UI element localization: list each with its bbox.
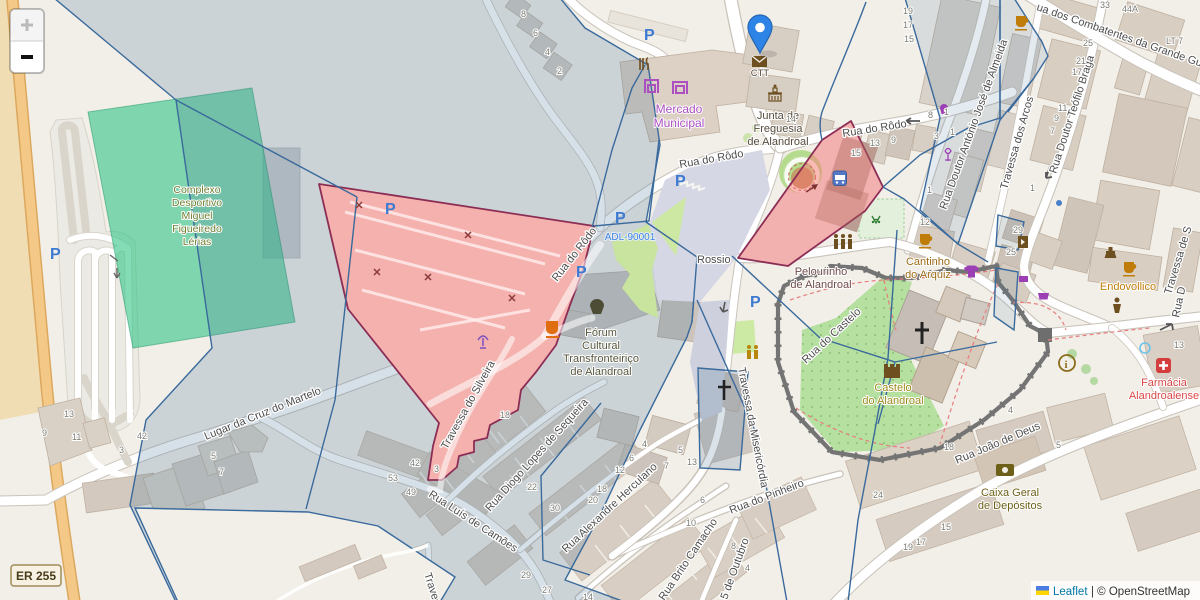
svg-text:7: 7 (1050, 126, 1055, 136)
svg-text:1: 1 (944, 107, 949, 117)
svg-text:11: 11 (72, 432, 81, 442)
svg-text:de Alandroal: de Alandroal (790, 279, 851, 291)
svg-text:27: 27 (542, 585, 552, 595)
svg-text:7: 7 (664, 461, 669, 471)
svg-text:6: 6 (700, 495, 705, 505)
svg-text:44A: 44A (1122, 4, 1138, 14)
svg-text:18: 18 (944, 442, 954, 452)
svg-text:Miguel: Miguel (182, 210, 213, 222)
svg-text:P: P (750, 294, 761, 311)
svg-text:6: 6 (629, 453, 634, 463)
svg-text:3: 3 (119, 445, 124, 455)
svg-text:4: 4 (745, 563, 750, 573)
svg-text:Complexo: Complexo (173, 184, 220, 196)
svg-text:P: P (644, 27, 655, 44)
svg-text:Cultural: Cultural (582, 340, 620, 352)
svg-text:do Alandroal: do Alandroal (862, 395, 923, 407)
svg-text:Fórum: Fórum (585, 327, 617, 339)
svg-text:CTT: CTT (751, 68, 770, 79)
svg-text:15: 15 (904, 34, 914, 44)
svg-text:de Alandroal: de Alandroal (570, 366, 631, 378)
svg-text:30: 30 (550, 503, 560, 513)
svg-text:LT 7: LT 7 (1166, 36, 1183, 46)
svg-text:9: 9 (42, 428, 47, 438)
svg-text:12: 12 (615, 465, 625, 475)
svg-text:42: 42 (410, 458, 420, 468)
svg-text:de Depósitos: de Depósitos (978, 500, 1043, 512)
svg-text:9: 9 (891, 135, 896, 145)
svg-text:13: 13 (870, 138, 880, 148)
svg-text:Endovollico: Endovollico (1100, 281, 1156, 293)
svg-text:22: 22 (527, 482, 537, 492)
svg-text:20: 20 (588, 495, 598, 505)
svg-text:Lérias: Lérias (183, 236, 212, 248)
svg-text:Municipal: Municipal (654, 116, 705, 130)
svg-text:Farmácia: Farmácia (1141, 377, 1188, 389)
svg-text:25: 25 (1006, 247, 1016, 257)
svg-text:i: i (1065, 359, 1068, 371)
svg-text:5: 5 (1056, 440, 1061, 450)
svg-text:19: 19 (903, 6, 913, 16)
svg-text:15: 15 (851, 148, 861, 158)
svg-text:17: 17 (903, 20, 913, 30)
svg-text:5: 5 (211, 451, 216, 461)
svg-text:2: 2 (557, 66, 562, 76)
svg-text:ADL-90001: ADL-90001 (605, 232, 656, 243)
svg-text:4: 4 (642, 439, 647, 449)
svg-text:8: 8 (731, 541, 736, 551)
svg-text:15: 15 (941, 522, 951, 532)
svg-text:1: 1 (950, 127, 955, 137)
svg-text:Cantinho: Cantinho (906, 256, 950, 268)
svg-text:| © OpenStreetMap: | © OpenStreetMap (1091, 586, 1190, 598)
svg-text:Pelourinho: Pelourinho (795, 266, 848, 278)
svg-text:Caixa Geral: Caixa Geral (981, 487, 1039, 499)
svg-text:4: 4 (545, 47, 550, 57)
svg-text:5: 5 (678, 445, 683, 455)
svg-text:Rossio: Rossio (697, 254, 731, 266)
svg-text:Alandroalense: Alandroalense (1129, 390, 1199, 402)
svg-text:3: 3 (934, 131, 939, 141)
svg-text:P: P (50, 246, 61, 263)
svg-text:10: 10 (686, 518, 696, 528)
svg-text:11: 11 (1058, 103, 1067, 113)
svg-text:8: 8 (928, 110, 933, 120)
svg-text:1: 1 (1030, 183, 1035, 193)
svg-text:24: 24 (873, 490, 883, 500)
svg-text:4: 4 (1008, 405, 1013, 415)
svg-text:14: 14 (786, 114, 796, 124)
svg-text:Figueiredo: Figueiredo (172, 223, 222, 235)
svg-text:Desportivo: Desportivo (172, 197, 222, 209)
svg-text:18: 18 (500, 410, 510, 420)
svg-text:Castelo: Castelo (874, 382, 911, 394)
svg-text:Mercado: Mercado (656, 102, 703, 116)
svg-text:Transfronteiriço: Transfronteiriço (563, 353, 639, 365)
svg-text:P: P (385, 201, 396, 218)
svg-text:13: 13 (64, 409, 74, 419)
svg-text:3: 3 (434, 464, 439, 474)
svg-text:P: P (675, 173, 686, 190)
svg-text:9: 9 (1054, 113, 1059, 123)
svg-text:Leaflet: Leaflet (1053, 586, 1088, 598)
svg-text:P: P (576, 264, 587, 281)
svg-text:14: 14 (583, 592, 593, 600)
svg-text:7: 7 (219, 467, 224, 477)
svg-text:Freguesia: Freguesia (754, 123, 804, 135)
svg-text:21: 21 (1076, 56, 1086, 66)
svg-text:8: 8 (521, 9, 526, 19)
svg-text:do Arquiz: do Arquiz (905, 269, 951, 281)
svg-text:33: 33 (1100, 0, 1110, 10)
svg-text:13: 13 (1174, 340, 1184, 350)
svg-text:ER 255: ER 255 (16, 569, 56, 583)
svg-text:1: 1 (927, 185, 932, 195)
svg-text:13: 13 (687, 457, 697, 467)
svg-text:17: 17 (916, 537, 926, 547)
svg-text:19: 19 (903, 542, 913, 552)
svg-text:6: 6 (533, 28, 538, 38)
svg-text:25: 25 (1083, 38, 1093, 48)
svg-text:P: P (615, 210, 626, 227)
svg-text:29: 29 (1013, 225, 1023, 235)
svg-text:49: 49 (406, 487, 416, 497)
svg-text:42: 42 (137, 431, 147, 441)
svg-text:de Alandroal: de Alandroal (747, 136, 808, 148)
svg-text:18: 18 (597, 484, 607, 494)
svg-text:53: 53 (388, 473, 398, 483)
svg-text:29: 29 (521, 570, 531, 580)
svg-text:12: 12 (920, 217, 930, 227)
svg-text:17: 17 (1072, 67, 1082, 77)
